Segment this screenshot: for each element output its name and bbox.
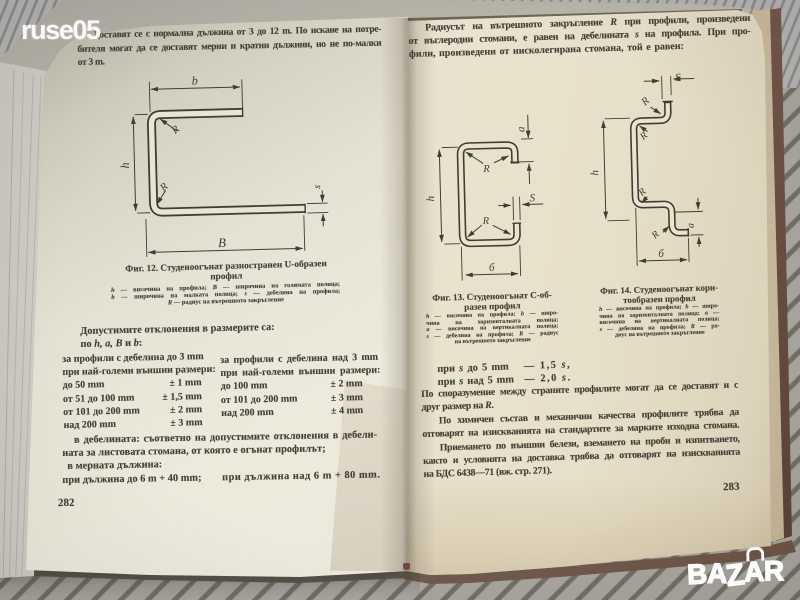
svg-text:a: a	[515, 126, 527, 132]
svg-text:R: R	[169, 124, 182, 138]
svg-text:B: B	[218, 235, 226, 250]
svg-text:S: S	[675, 72, 681, 84]
svg-text:б: б	[658, 248, 664, 260]
svg-text:б: б	[489, 262, 495, 274]
svg-text:h: h	[425, 195, 437, 201]
svg-text:b: b	[192, 74, 198, 88]
svg-text:R: R	[158, 181, 171, 195]
svg-text:a: a	[686, 223, 697, 228]
svg-text:h: h	[118, 162, 132, 168]
svg-text:h: h	[589, 169, 601, 175]
svg-text:R: R	[482, 164, 490, 175]
svg-text:S: S	[529, 192, 535, 204]
svg-text:R: R	[639, 95, 652, 109]
svg-text:R: R	[649, 229, 662, 242]
svg-text:R: R	[482, 216, 490, 227]
svg-text:s: s	[312, 184, 324, 191]
svg-text:R: R	[637, 130, 650, 143]
